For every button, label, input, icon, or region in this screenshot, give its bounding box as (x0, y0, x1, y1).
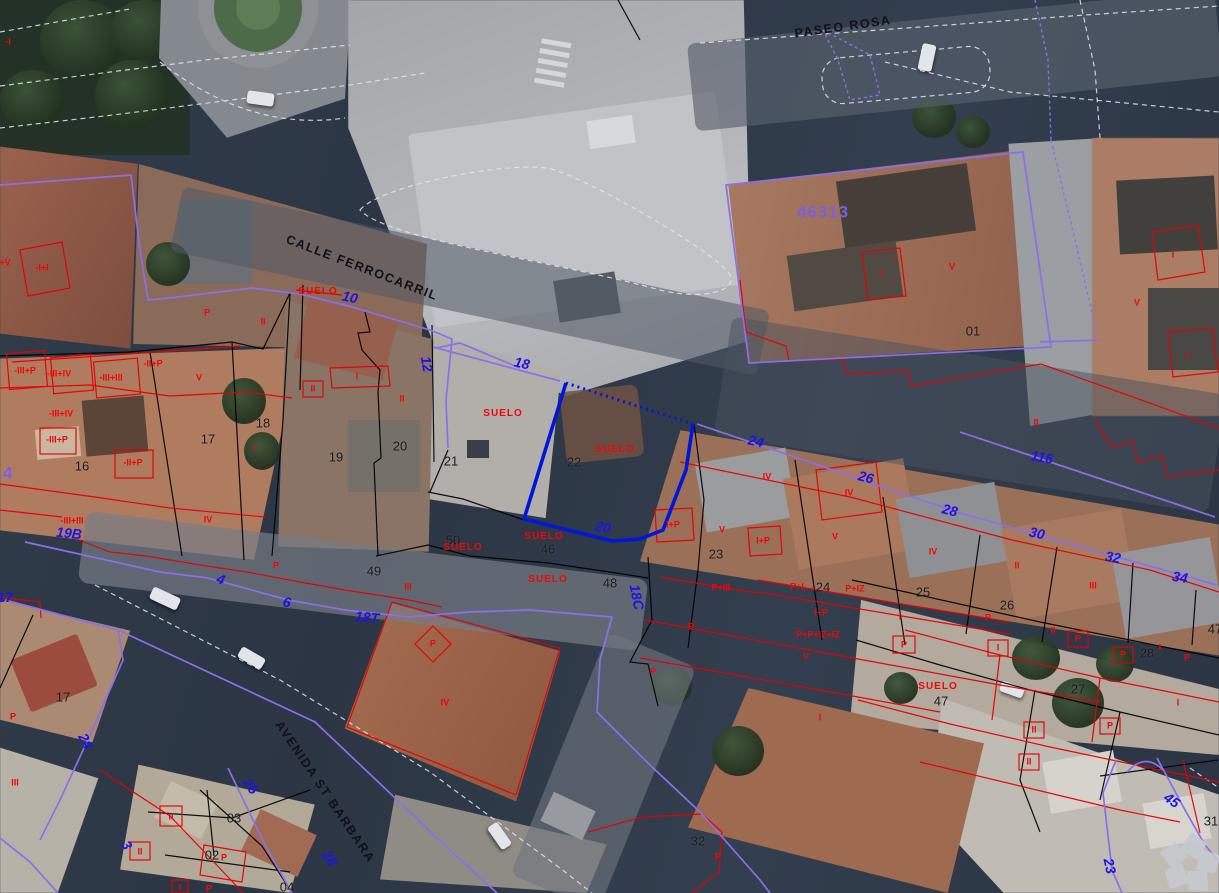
selected-parcel-outline[interactable] (524, 383, 693, 541)
recycle-watermark-icon (1156, 830, 1219, 893)
block-boundary-lines (0, 152, 1219, 893)
parcel-boundary-lines (0, 0, 1219, 893)
cadastral-map-canvas[interactable]: PASEO ROSACALLE FERROCARRILAVENIDA ST BA… (0, 0, 1219, 893)
boundary-lines-layer (0, 0, 1219, 893)
building-outline-lines (0, 225, 1219, 893)
road-guide-lines (0, 0, 1219, 893)
